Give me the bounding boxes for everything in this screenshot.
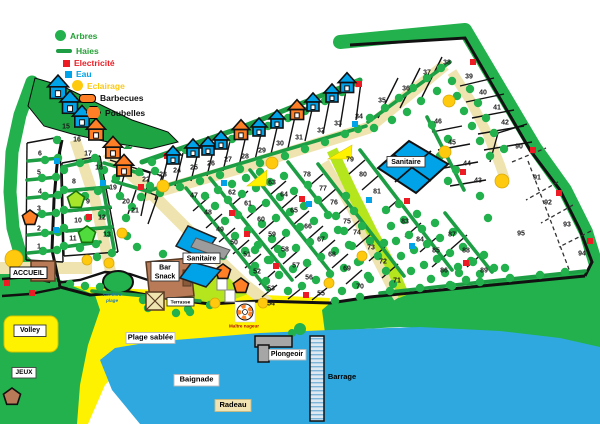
plot-number: 9 [86, 199, 90, 206]
tree-icon [462, 276, 470, 284]
tree-icon [41, 229, 49, 237]
plot-number: 36 [402, 86, 410, 93]
caravan [225, 290, 235, 302]
tree-icon [340, 227, 348, 235]
light-icon [210, 298, 220, 308]
door [171, 158, 175, 163]
tree-icon [350, 207, 358, 215]
tree-icon [427, 275, 435, 283]
plot-number: 19 [109, 185, 117, 192]
legend-label-eau: Eau [76, 69, 92, 79]
tree-icon [324, 211, 332, 219]
tree-icon [91, 154, 99, 162]
tree-icon [96, 283, 104, 291]
tree-icon [304, 181, 312, 189]
tree-icon [196, 177, 204, 185]
door [257, 130, 261, 135]
light-icon [157, 180, 169, 192]
plot-number: 64 [280, 192, 288, 199]
tree-icon [301, 145, 309, 153]
electricity-icon [556, 190, 562, 196]
plot-number: 87 [448, 232, 456, 239]
tree-icon [18, 282, 26, 290]
door [122, 169, 127, 174]
map-label: Sanitaire [391, 159, 421, 166]
tree-icon [60, 186, 68, 194]
plot-number: 48 [204, 210, 212, 217]
water-icon [366, 197, 372, 203]
tree-icon [211, 202, 219, 210]
tree-icon [186, 308, 194, 316]
plot-number: 78 [303, 172, 311, 179]
tree-icon [314, 196, 322, 204]
electricity-icon [463, 260, 469, 266]
map-label: Maître nageur [229, 324, 259, 329]
tree-icon [236, 165, 244, 173]
tree-icon [417, 97, 425, 105]
lifebuoy-icon [235, 302, 255, 322]
tree-icon [476, 278, 484, 286]
tree-icon [81, 282, 89, 290]
barrage-structure [310, 336, 324, 421]
water-icon [54, 158, 60, 164]
plot-number: 90 [515, 144, 523, 151]
plot-number: 84 [416, 237, 424, 244]
tree-icon [382, 267, 390, 275]
plot-number: 56 [305, 275, 313, 282]
tree-icon [296, 223, 304, 231]
plot-number: 85 [432, 248, 440, 255]
tree-icon [108, 249, 116, 257]
tree-icon [216, 171, 224, 179]
map-label: Plage sablée [128, 333, 173, 342]
plot-number: 81 [373, 189, 381, 196]
legend-item-poubelles: Poubelles [86, 106, 145, 119]
tree-icon [159, 250, 167, 258]
plot-number: 45 [448, 140, 456, 147]
plot-number: 11 [69, 236, 77, 243]
legend-label-haies: Haies [76, 46, 99, 56]
map-label: Terrasse [171, 300, 191, 306]
electricity-icon [587, 238, 593, 244]
tree-icon [280, 172, 288, 180]
plot-number: 50 [230, 240, 238, 247]
plot-number: 33 [334, 121, 342, 128]
tree-icon [266, 256, 274, 264]
tree-icon [176, 183, 184, 191]
water-icon [352, 121, 358, 127]
electricity-icon [404, 198, 410, 204]
tree-icon [407, 267, 415, 275]
tree-icon [448, 77, 456, 85]
barbecue-icon [79, 94, 96, 103]
plot-number: 20 [122, 199, 130, 206]
plot-number: 1 [37, 244, 41, 251]
water-icon [221, 180, 227, 186]
tree-icon [338, 287, 346, 295]
map-label: plage [105, 298, 118, 303]
plot-number: 91 [533, 175, 541, 182]
tree-icon [331, 297, 339, 305]
tree-icon [500, 145, 508, 153]
tree-icon [476, 137, 484, 145]
tree-icon [298, 282, 306, 290]
plot-number: 47 [190, 193, 198, 200]
light-icon [495, 174, 509, 188]
plot-number: 55 [317, 291, 325, 298]
tree-icon [284, 287, 292, 295]
map-label: JEUX [16, 369, 34, 376]
tree-icon [76, 159, 84, 167]
tree-icon [221, 217, 229, 225]
tree-icon [392, 237, 400, 245]
electricity-icon [29, 290, 35, 296]
plot-number: 67 [317, 237, 325, 244]
map-label: ACCUEIL [13, 270, 45, 277]
tree-icon [416, 284, 424, 292]
tree-icon [455, 269, 463, 277]
tree-icon [405, 231, 413, 239]
electricity-icon [299, 196, 305, 202]
tree-icon [172, 309, 180, 317]
plot-number: 83 [401, 219, 409, 226]
electricity-icon [273, 263, 279, 269]
electricity-icon [86, 214, 92, 220]
electricity-icon [244, 231, 250, 237]
tree-icon [474, 99, 482, 107]
plot-number: 8 [72, 179, 76, 186]
plot-number: 5 [37, 170, 41, 177]
plot-number: 42 [501, 120, 509, 127]
tree-icon [60, 242, 68, 250]
legend-label-poubelles: Poubelles [105, 108, 145, 118]
tree-icon [395, 94, 403, 102]
plot-number: 51 [243, 252, 251, 259]
tree-icon [484, 214, 492, 222]
legend-label-electricite: Electricité [74, 58, 115, 68]
door [111, 151, 116, 156]
electricity-icon [303, 292, 309, 298]
plot-number: 21 [131, 208, 139, 215]
water-icon [65, 71, 72, 78]
tree-icon [366, 114, 374, 122]
plot-number: 76 [330, 200, 338, 207]
plot-number: 26 [207, 161, 215, 168]
tree-icon [242, 174, 250, 182]
tree-icon [501, 264, 509, 272]
tree-icon [423, 240, 431, 248]
plot-number: 23 [159, 172, 167, 179]
plot-number: 74 [353, 230, 361, 237]
plot-number: 92 [544, 200, 552, 207]
tree-icon [348, 242, 356, 250]
electricity-icon [138, 184, 144, 190]
tree-icon [228, 180, 236, 188]
light-icon [324, 278, 334, 288]
plot-number: 28 [241, 154, 249, 161]
light-icon [82, 255, 92, 265]
tree-icon [446, 281, 454, 289]
plot-number: 94 [578, 251, 586, 258]
tree-icon [403, 108, 411, 116]
electricity-icon [460, 169, 466, 175]
tree-icon [466, 85, 474, 93]
tree-icon [281, 152, 289, 160]
plot-number: 2 [37, 226, 41, 233]
tree-icon [364, 272, 372, 280]
tree-icon [460, 107, 468, 115]
map-label: Volley [20, 327, 40, 334]
tree-icon [536, 271, 544, 279]
tree-icon [321, 138, 329, 146]
electricity-icon [63, 60, 70, 67]
water-icon [306, 201, 312, 207]
plot-number: 39 [465, 74, 473, 81]
light-icon [357, 251, 367, 261]
tree-icon [418, 225, 426, 233]
plot-number: 59 [268, 232, 276, 239]
plot-number: 32 [317, 128, 325, 135]
plot-number: 25 [190, 165, 198, 172]
tree-icon [306, 238, 314, 246]
electricity-icon [470, 59, 476, 65]
tree-icon [137, 193, 145, 201]
light-icon [104, 258, 114, 268]
door [330, 96, 334, 101]
tree-icon [433, 87, 441, 95]
tree-icon [272, 214, 280, 222]
map-label: Bar [159, 265, 171, 272]
map-label: Plongeoir [271, 351, 304, 358]
tree-icon [282, 229, 290, 237]
map-label: sanitaire [103, 292, 122, 297]
plot-number: 44 [463, 161, 471, 168]
legend-label-arbres: Arbres [70, 31, 97, 41]
plot-number: 30 [276, 141, 284, 148]
tree-icon [52, 173, 60, 181]
tree-icon [413, 210, 421, 218]
tree-icon [148, 158, 156, 166]
door [311, 105, 315, 110]
tree-icon [341, 130, 349, 138]
door [94, 133, 99, 138]
plot-number: 24 [173, 168, 181, 175]
map-label: Barrage [328, 372, 356, 381]
plot-number: 89 [480, 268, 488, 275]
tree-icon [52, 209, 60, 217]
light-icon [5, 250, 23, 268]
plot-number: 34 [355, 114, 363, 121]
water-icon [53, 227, 59, 233]
plot-number: 40 [479, 90, 487, 97]
tree-icon [290, 187, 298, 195]
tree-icon [370, 124, 378, 132]
plot-number: 17 [84, 151, 92, 158]
plot-number: 57 [292, 263, 300, 270]
tree-icon [388, 116, 396, 124]
plot-number: 68 [328, 252, 336, 259]
door [275, 122, 279, 127]
plot-number: 58 [281, 247, 289, 254]
tree-icon [317, 253, 325, 261]
legend-item-electricite: Electricité [63, 58, 115, 68]
plot-number: 12 [98, 215, 106, 222]
electricity-icon [356, 81, 362, 87]
plot-number: 63 [268, 180, 276, 187]
plot-number: 88 [462, 248, 470, 255]
legend-label-barbecues: Barbecues [100, 93, 143, 103]
plot-number: 79 [346, 157, 354, 164]
tree-icon [122, 214, 130, 222]
tree-icon [468, 122, 476, 130]
tree-icon [256, 159, 264, 167]
tree-icon [446, 249, 454, 257]
caravan [217, 278, 227, 290]
plot-number: 6 [38, 151, 42, 158]
tree-icon [41, 156, 49, 164]
map-label: Radeau [219, 400, 247, 409]
electricity-icon [4, 280, 10, 286]
door [345, 86, 349, 91]
plot-number: 70 [356, 284, 364, 291]
tree-icon [420, 261, 428, 269]
plot-number: 66 [304, 224, 312, 231]
plot-number: 77 [319, 186, 327, 193]
tree-icon [262, 199, 270, 207]
campsite-map: 1234568910111213151617181920212223242526… [0, 0, 600, 424]
tree-icon [133, 243, 141, 251]
light-icon [72, 80, 83, 91]
tree-icon [490, 129, 498, 137]
plot-number: 3 [37, 206, 41, 213]
tree-icon [93, 253, 101, 261]
tree-icon [381, 104, 389, 112]
map-label: Sanitaire [187, 256, 217, 263]
plot-number: 31 [295, 135, 303, 142]
plot-number: 49 [216, 227, 224, 234]
tree-icon [433, 255, 441, 263]
tree-icon [55, 30, 66, 41]
tree-icon [303, 259, 311, 267]
light-icon [443, 95, 455, 107]
plot-number: 37 [423, 70, 431, 77]
tree-icon [224, 196, 232, 204]
door [295, 113, 299, 118]
legend: Arbres Haies Electricité Eau Eclairage B… [0, 0, 200, 130]
electricity-icon [530, 147, 536, 153]
plot-number: 10 [74, 218, 82, 225]
tree-icon [561, 268, 569, 276]
plot-number: 41 [493, 105, 501, 112]
tree-icon [356, 293, 364, 301]
legend-item-barbecues: Barbecues [79, 93, 143, 103]
tree-icon [292, 244, 300, 252]
tree-icon [431, 219, 439, 227]
tree-icon [395, 200, 403, 208]
tree-icon [326, 270, 334, 278]
tree-icon [94, 187, 102, 195]
tree-icon [486, 152, 494, 160]
tree-icon [76, 244, 84, 252]
plot-number: 86 [440, 268, 448, 275]
tree-icon [444, 177, 452, 185]
tree-icon [275, 271, 283, 279]
plot-number: 18 [95, 165, 103, 172]
tree-icon [66, 280, 74, 288]
tree-icon [251, 246, 259, 254]
tree-icon [409, 84, 417, 92]
plot-number: 73 [367, 245, 375, 252]
plot-number: 35 [378, 98, 386, 105]
legend-label-eclairage: Eclairage [87, 81, 125, 91]
light-icon [439, 146, 451, 158]
tree-icon [490, 264, 498, 272]
map-label: Baignade [180, 375, 214, 384]
tree-icon [262, 277, 270, 285]
plot-number: 75 [343, 219, 351, 226]
legend-item-eau: Eau [65, 69, 92, 79]
bin-icon [86, 106, 101, 119]
legend-item-haies: Haies [56, 46, 99, 56]
door [191, 151, 195, 156]
plot-number: 71 [393, 278, 401, 285]
door [206, 149, 210, 154]
tree-icon [482, 114, 490, 122]
tree-icon [469, 258, 477, 266]
terrasse-deck [146, 292, 164, 310]
plot-number: 80 [359, 172, 367, 179]
plot-number: 72 [379, 259, 387, 266]
plot-number: 53 [267, 286, 275, 293]
tree-icon [506, 274, 514, 282]
light-icon [266, 157, 278, 169]
tree-icon [53, 136, 61, 144]
tree-icon [41, 192, 49, 200]
tree-icon [201, 192, 209, 200]
tree-icon [332, 212, 340, 220]
tree-icon [380, 239, 388, 247]
plot-number: 13 [103, 232, 111, 239]
tree-icon [386, 287, 394, 295]
plot-number: 27 [224, 157, 232, 164]
tree-icon [214, 186, 222, 194]
tree-icon [452, 166, 460, 174]
tree-icon [135, 168, 143, 176]
tree-icon [60, 206, 68, 214]
plot-number: 61 [244, 201, 252, 208]
water-icon [100, 180, 106, 186]
plot-number: 93 [563, 222, 571, 229]
hedge-icon [56, 49, 72, 53]
light-icon [117, 228, 127, 238]
tree-icon [238, 190, 246, 198]
door [239, 133, 243, 138]
plot-number: 54 [267, 301, 275, 308]
map-label: Snack [155, 274, 176, 281]
legend-item-arbres: Arbres [55, 30, 97, 41]
water-icon [409, 243, 415, 249]
tree-icon [387, 222, 395, 230]
tree-icon [382, 206, 390, 214]
plot-number: 95 [517, 231, 525, 238]
tree-icon [312, 276, 320, 284]
tree-icon [480, 251, 488, 259]
plot-number: 65 [290, 208, 298, 215]
legend-item-eclairage: Eclairage [72, 80, 125, 91]
plot-number: 16 [73, 137, 81, 144]
plot-number: 38 [443, 60, 451, 67]
tree-icon [151, 167, 159, 175]
